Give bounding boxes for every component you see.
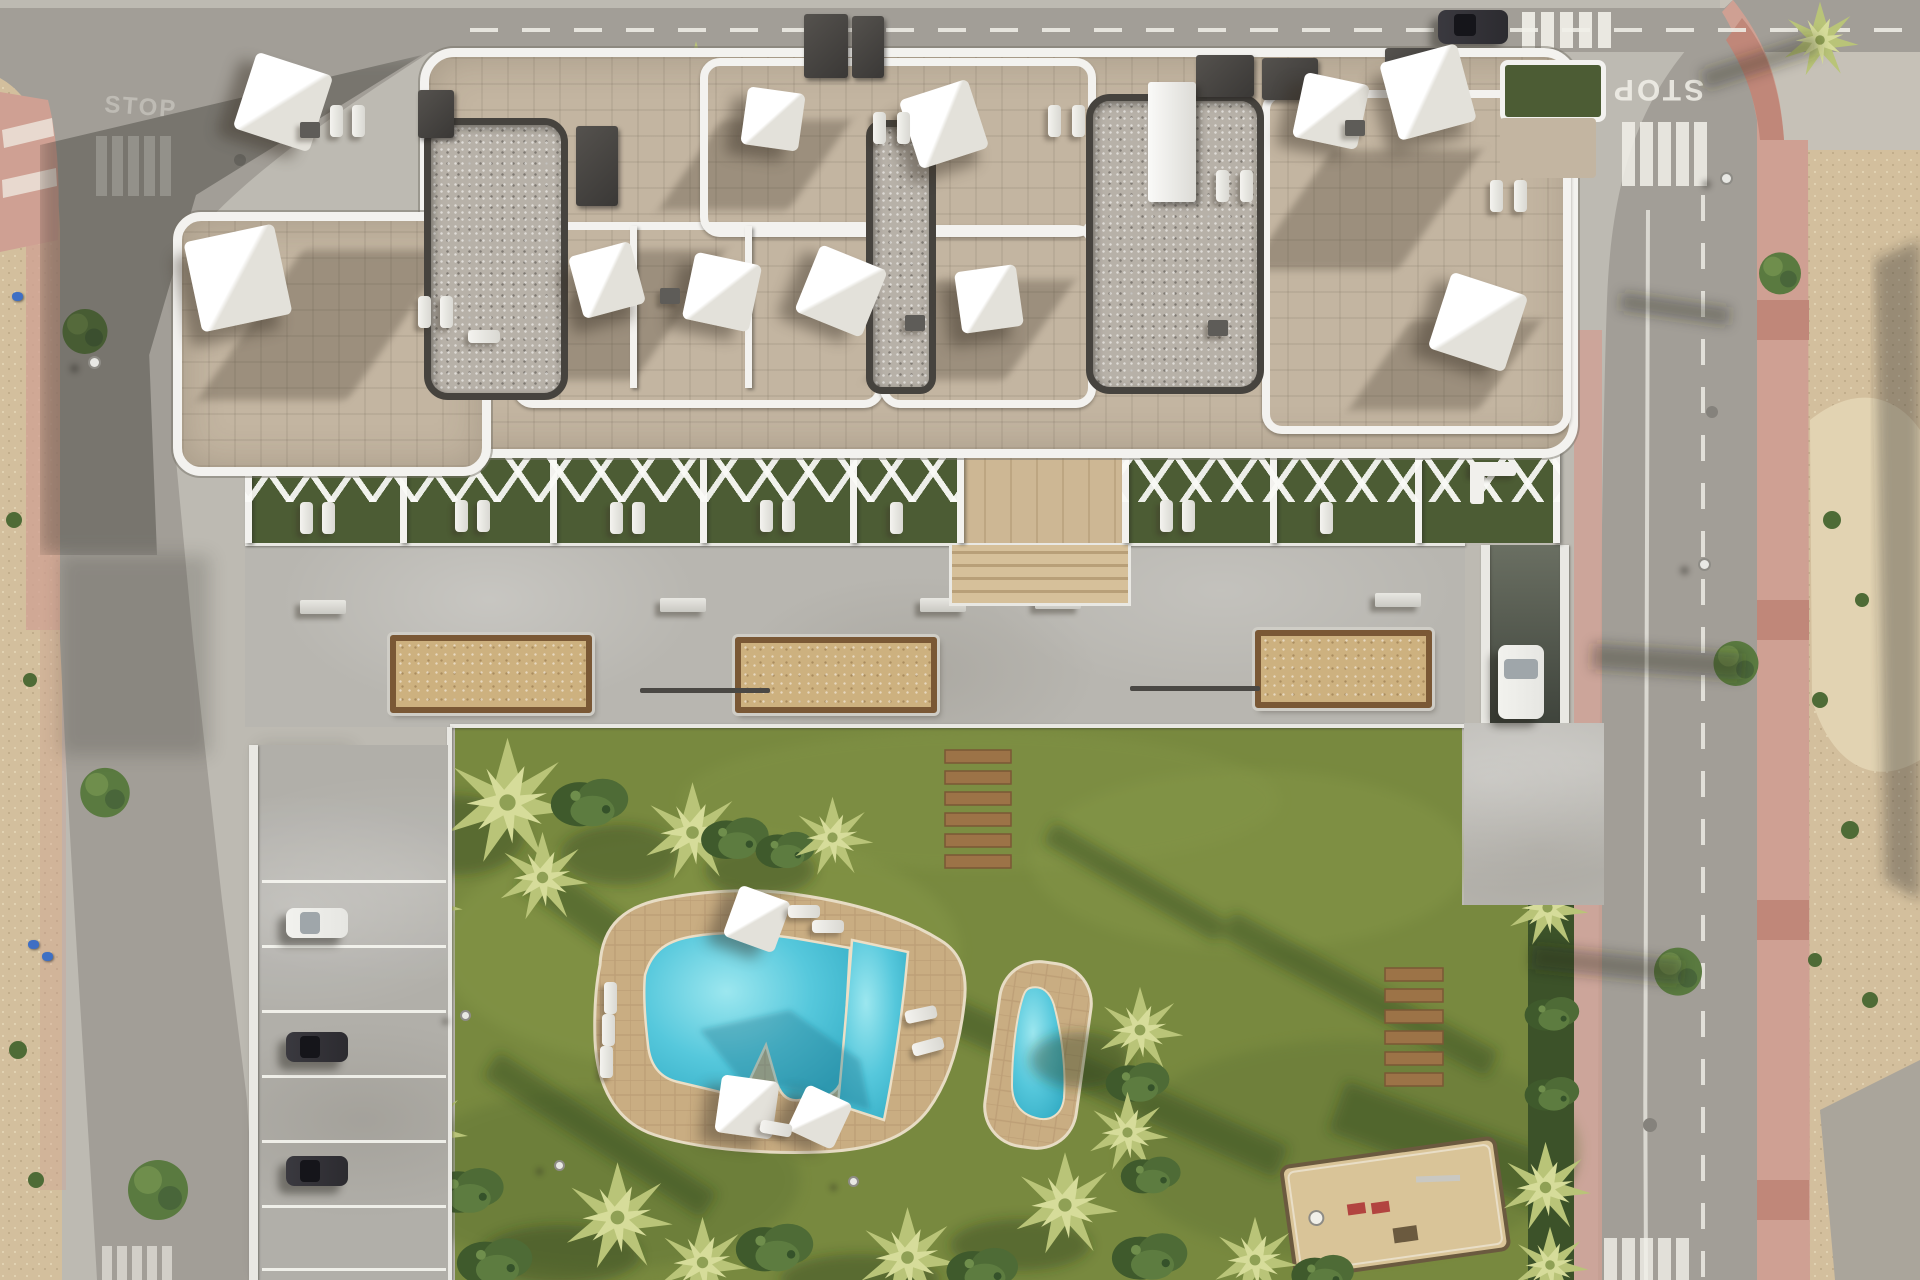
pool-lounger <box>602 1014 615 1046</box>
garden-lounger <box>477 500 490 532</box>
shade-sail <box>740 86 806 152</box>
parking-bay-line <box>262 1140 446 1143</box>
blue-bag <box>42 952 53 961</box>
street-lamp <box>90 358 99 367</box>
planter-2 <box>735 637 937 713</box>
garden-lounger <box>1182 500 1195 532</box>
roof-white-volume <box>1148 82 1196 202</box>
planter-1 <box>390 635 592 713</box>
crosswalk-right-road <box>1622 122 1707 186</box>
roof-lounger <box>330 105 343 137</box>
parked-car-dark <box>286 1032 348 1062</box>
blue-bag <box>12 292 23 301</box>
roof-lounger <box>1240 170 1253 202</box>
garden-lounger <box>1160 500 1173 532</box>
parked-car-dark <box>286 1156 348 1186</box>
garden-lounger <box>890 502 903 534</box>
manhole-icon <box>1643 1118 1657 1132</box>
blue-bag <box>28 940 39 949</box>
garden-lounger <box>1320 502 1333 534</box>
shade-sail <box>682 252 763 333</box>
roof-lounger <box>1216 170 1229 202</box>
street-tree <box>80 768 130 818</box>
garden-lounger <box>455 500 468 532</box>
plaza-stairs <box>952 545 1128 603</box>
ramp-wall-left <box>1481 545 1490 725</box>
roof-lounger <box>897 112 910 144</box>
parked-car-white <box>286 908 348 938</box>
car-windshield <box>1504 659 1538 679</box>
roof-edge-tiles <box>1500 118 1596 178</box>
garden-lounger <box>300 502 313 534</box>
roof-table <box>300 122 320 138</box>
car-top-road <box>1438 10 1508 44</box>
parking-bay-line <box>262 1075 446 1078</box>
pool-lounger <box>604 982 617 1014</box>
roof-table <box>1345 120 1365 136</box>
roof-lounger <box>873 112 886 144</box>
garden-lounger <box>610 502 623 534</box>
car-windshield <box>300 1036 320 1058</box>
roof-stair-box <box>852 16 884 78</box>
garden-corner-sofa <box>1470 462 1484 504</box>
crosswalk-bottom-right <box>1604 1238 1689 1280</box>
handrail <box>640 688 770 693</box>
roof-table <box>1208 320 1228 336</box>
car-windshield <box>300 1160 320 1182</box>
garden-light <box>556 1162 563 1169</box>
car-driveway <box>1498 645 1544 719</box>
parking-bay-line <box>262 1268 446 1271</box>
garden-lounger <box>322 502 335 534</box>
street-tree <box>128 1160 188 1220</box>
building-shadow-low <box>60 555 210 755</box>
roof-lounger <box>440 296 453 328</box>
roof-edge-garden <box>1500 60 1606 122</box>
car-windshield <box>300 912 320 934</box>
roof-lounger <box>1072 105 1085 137</box>
pool-lounger <box>600 1046 613 1078</box>
pool-lounger <box>788 905 820 918</box>
shade-sail <box>954 264 1024 334</box>
street-lamp <box>1700 560 1709 569</box>
gravel-roof-left <box>424 118 568 400</box>
bench <box>300 600 346 614</box>
garden-light <box>850 1178 857 1185</box>
plaza-top-curb <box>245 543 1465 546</box>
roof-lounger <box>468 330 500 343</box>
street-lamp <box>1722 174 1731 183</box>
roof-stair-box <box>576 126 618 206</box>
garden-lounger <box>760 500 773 532</box>
driveway-apron <box>1464 723 1604 905</box>
roof-stair-box <box>418 90 454 138</box>
planter-3 <box>1255 630 1432 708</box>
lawn-top-curb <box>450 724 1465 728</box>
shade-sail <box>1292 72 1370 150</box>
garden-lounger <box>782 500 795 532</box>
garden-light <box>462 1012 469 1019</box>
parking-bay-line <box>262 1205 446 1208</box>
roof-lounger <box>1490 180 1503 212</box>
play-spring-toy <box>1308 1210 1324 1226</box>
parking-curb-left <box>249 745 258 1280</box>
street-tree <box>1759 252 1801 294</box>
shade-sail <box>183 223 292 332</box>
aerial-render-scene: STOP STOP <box>0 0 1920 1280</box>
roof-lounger <box>1514 180 1527 212</box>
bench <box>1375 593 1421 607</box>
parking-bay-line <box>262 880 446 883</box>
roof-table <box>660 288 680 304</box>
ramp-wall-right <box>1560 545 1569 725</box>
roof-lounger <box>352 105 365 137</box>
bench <box>660 598 706 612</box>
roof-lounger <box>418 296 431 328</box>
roof-stair-box <box>804 14 848 78</box>
car-windshield <box>1454 14 1476 36</box>
roof-table <box>905 315 925 331</box>
roof-lounger <box>1048 105 1061 137</box>
manhole-icon <box>1706 406 1718 418</box>
garden-lounger <box>632 502 645 534</box>
roof-stair-box <box>1196 55 1254 97</box>
handrail <box>1130 686 1260 691</box>
pool-lounger <box>812 920 844 933</box>
parking-bay-line <box>262 945 446 948</box>
stop-marking-right-road: STOP <box>1611 73 1704 106</box>
parking-bay-line <box>262 1010 446 1013</box>
